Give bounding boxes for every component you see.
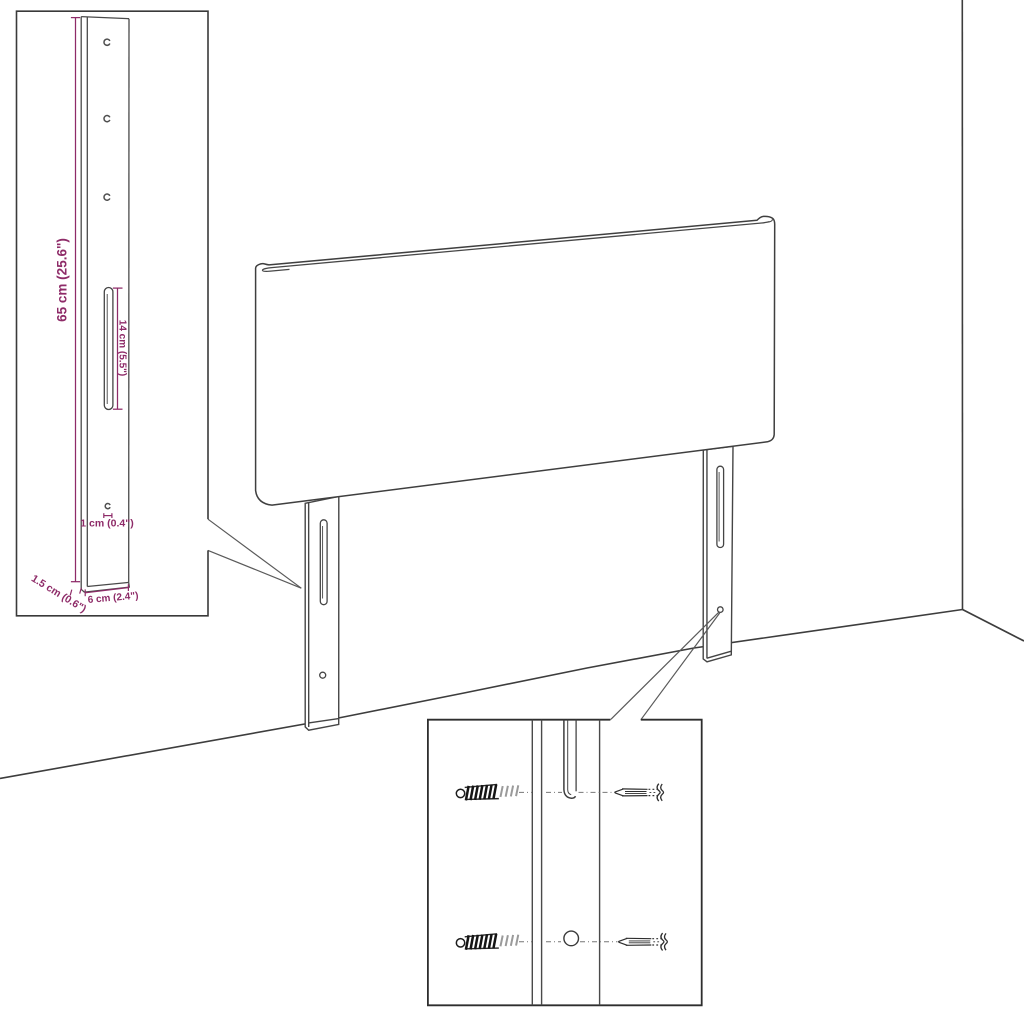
svg-text:14 cm (5.5"): 14 cm (5.5"): [116, 320, 127, 376]
svg-text:1 cm (0.4"): 1 cm (0.4"): [80, 518, 133, 530]
svg-text:65 cm (25.6"): 65 cm (25.6"): [55, 238, 70, 322]
